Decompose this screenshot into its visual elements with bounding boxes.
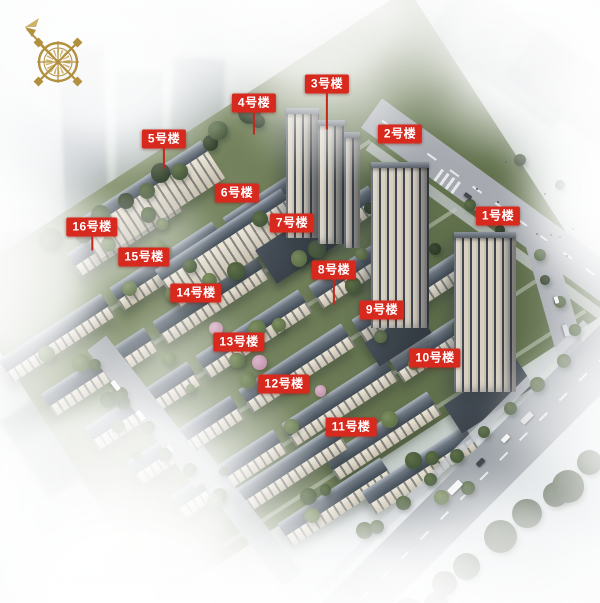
building-label: 4号楼 — [232, 94, 276, 113]
aerial-site-rendering: 1号楼2号楼3号楼4号楼5号楼6号楼7号楼8号楼9号楼10号楼11号楼12号楼1… — [0, 0, 600, 603]
label-leader-line — [333, 280, 335, 305]
building-label: 14号楼 — [170, 284, 221, 303]
building-label: 1号楼 — [476, 207, 520, 226]
building-label: 16号楼 — [66, 218, 117, 237]
label-leader-line — [163, 149, 165, 169]
building-label: 5号楼 — [142, 130, 186, 149]
building-label: 9号楼 — [360, 301, 404, 320]
building-label: 7号楼 — [270, 214, 314, 233]
building-label: 15号楼 — [118, 248, 169, 267]
building-label: 10号楼 — [409, 349, 460, 368]
building-label: 11号楼 — [326, 418, 377, 437]
building-label: 6号楼 — [215, 184, 259, 203]
label-leader-line — [326, 94, 328, 130]
label-leader-line — [91, 237, 93, 251]
building-label: 3号楼 — [305, 75, 349, 94]
label-leader-line — [253, 113, 255, 135]
building-label: 13号楼 — [213, 333, 264, 352]
building-labels: 1号楼2号楼3号楼4号楼5号楼6号楼7号楼8号楼9号楼10号楼11号楼12号楼1… — [0, 0, 600, 603]
building-label: 8号楼 — [312, 261, 356, 280]
building-label: 2号楼 — [378, 125, 422, 144]
building-label: 12号楼 — [258, 375, 309, 394]
